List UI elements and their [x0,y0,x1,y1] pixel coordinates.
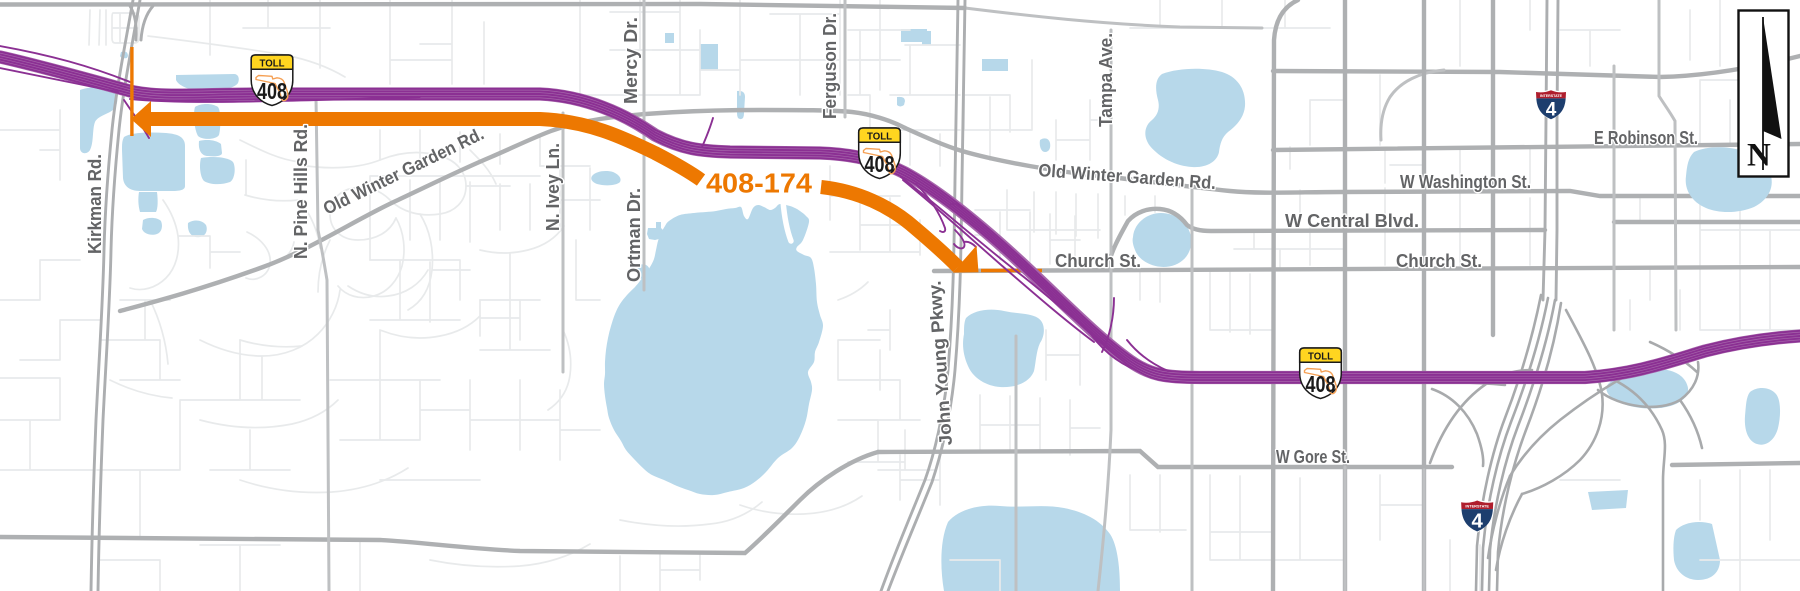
svg-text:W Gore St.: W Gore St. [1276,447,1350,467]
svg-text:W Washington St.: W Washington St. [1400,172,1531,192]
svg-text:W Central Blvd.: W Central Blvd. [1285,211,1419,231]
svg-text:Tampa Ave.: Tampa Ave. [1096,33,1116,127]
svg-text:E Robinson St.: E Robinson St. [1594,128,1698,148]
svg-text:Church St.: Church St. [1055,251,1141,271]
svg-text:Ortman Dr.: Ortman Dr. [624,188,644,282]
svg-text:Mercy Dr.: Mercy Dr. [621,17,641,104]
svg-text:Kirkman Rd.: Kirkman Rd. [85,154,105,254]
svg-text:N. Ivey Ln.: N. Ivey Ln. [543,143,563,231]
svg-text:N. Pine Hills Rd.: N. Pine Hills Rd. [291,124,311,259]
svg-text:Ferguson Dr.: Ferguson Dr. [820,13,840,119]
svg-text:Church St.: Church St. [1396,251,1482,271]
svg-text:N: N [1747,138,1771,174]
svg-text:408-174: 408-174 [706,168,812,199]
